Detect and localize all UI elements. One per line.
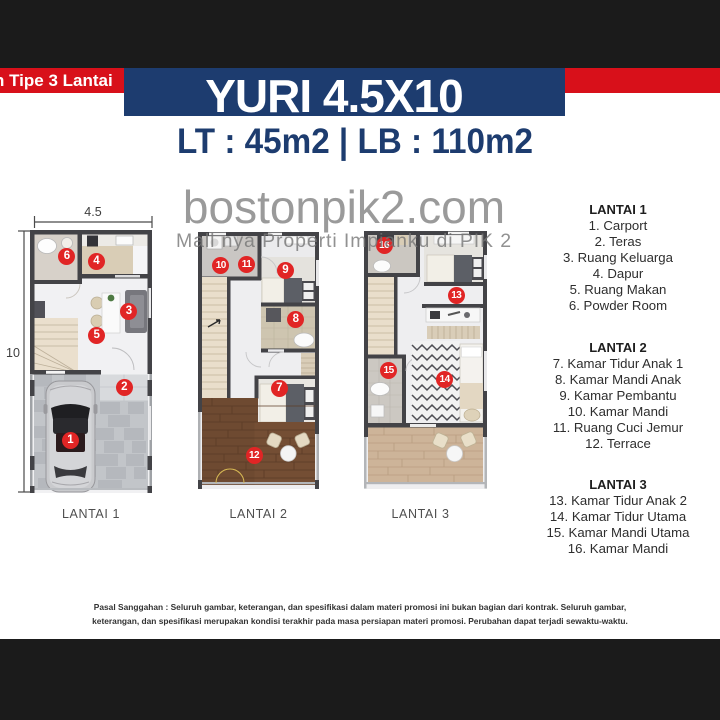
svg-text:10: 10 (6, 346, 20, 360)
